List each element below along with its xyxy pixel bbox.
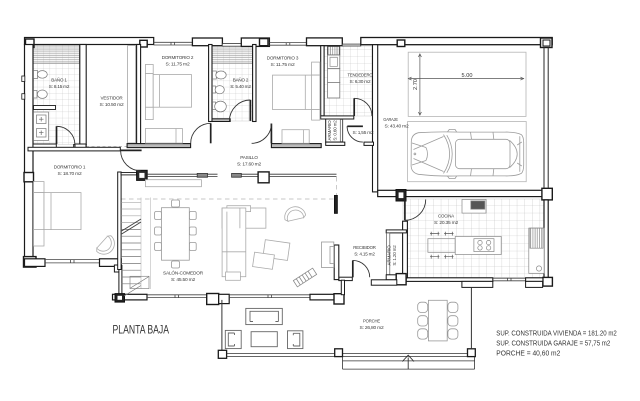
svg-text:S: 8.15 m2: S: 8.15 m2 [49, 84, 70, 89]
svg-text:S: 1.20 m2: S: 1.20 m2 [392, 245, 397, 266]
svg-text:VESTIDOR: VESTIDOR [101, 96, 124, 102]
svg-text:S: 43.40 m2: S: 43.40 m2 [385, 124, 410, 129]
svg-text:PORCHE: PORCHE [363, 319, 380, 325]
svg-text:SUP. CONSTRUIDA GARAJE = 57,75: SUP. CONSTRUIDA GARAJE = 57,75 m2 [496, 340, 610, 347]
svg-text:5.00: 5.00 [462, 73, 473, 79]
svg-text:S: 5.40 m2: S: 5.40 m2 [230, 84, 251, 89]
svg-text:BAÑO 2: BAÑO 2 [233, 77, 249, 84]
svg-text:RECIBIDOR: RECIBIDOR [353, 245, 376, 251]
svg-text:COCINA: COCINA [438, 214, 455, 220]
svg-text:GARAJE: GARAJE [383, 117, 398, 123]
svg-text:DORMITORIO 1: DORMITORIO 1 [54, 165, 86, 171]
svg-text:S: 26,80 m2: S: 26,80 m2 [360, 325, 385, 330]
svg-text:TENDEDERO: TENDEDERO [348, 73, 373, 79]
svg-text:S: 20.35 m2: S: 20.35 m2 [434, 220, 459, 225]
svg-text:S: 10.50 m2: S: 10.50 m2 [100, 102, 125, 107]
svg-text:S: 6.30 m2: S: 6.30 m2 [350, 79, 372, 84]
svg-text:S: 45.50 m2: S: 45.50 m2 [171, 277, 196, 282]
svg-text:2.70: 2.70 [413, 79, 419, 90]
svg-text:S: 18.70 m2: S: 18.70 m2 [58, 171, 83, 176]
svg-text:S: 11.75 m2: S: 11.75 m2 [271, 62, 296, 67]
svg-text:SALÓN-COMEDOR: SALÓN-COMEDOR [163, 270, 204, 277]
svg-text:S: 11.75 m2: S: 11.75 m2 [166, 62, 191, 67]
svg-text:BAÑO 1: BAÑO 1 [51, 77, 67, 84]
svg-text:DORMITORIO 3: DORMITORIO 3 [267, 56, 299, 62]
svg-text:PASILLO: PASILLO [240, 155, 258, 161]
svg-text:S: 4.15 m2: S: 4.15 m2 [354, 252, 375, 257]
svg-text:DORMITORIO 2: DORMITORIO 2 [162, 55, 194, 61]
svg-text:PLANTA BAJA: PLANTA BAJA [113, 323, 170, 337]
svg-text:ARMARIO: ARMARIO [387, 245, 392, 266]
svg-text:PORCHE = 40,60 m2: PORCHE = 40,60 m2 [496, 351, 560, 358]
svg-text:S: 0.60 m2: S: 0.60 m2 [333, 120, 338, 141]
svg-text:ARMARIO: ARMARIO [327, 120, 332, 141]
svg-text:S: 17.60 m2: S: 17.60 m2 [237, 162, 262, 167]
svg-text:S: 1,55 m2: S: 1,55 m2 [353, 130, 375, 135]
svg-text:SUP. CONSTRUIDA VIVIENDA = 181: SUP. CONSTRUIDA VIVIENDA = 181.20 m2 [496, 330, 617, 337]
